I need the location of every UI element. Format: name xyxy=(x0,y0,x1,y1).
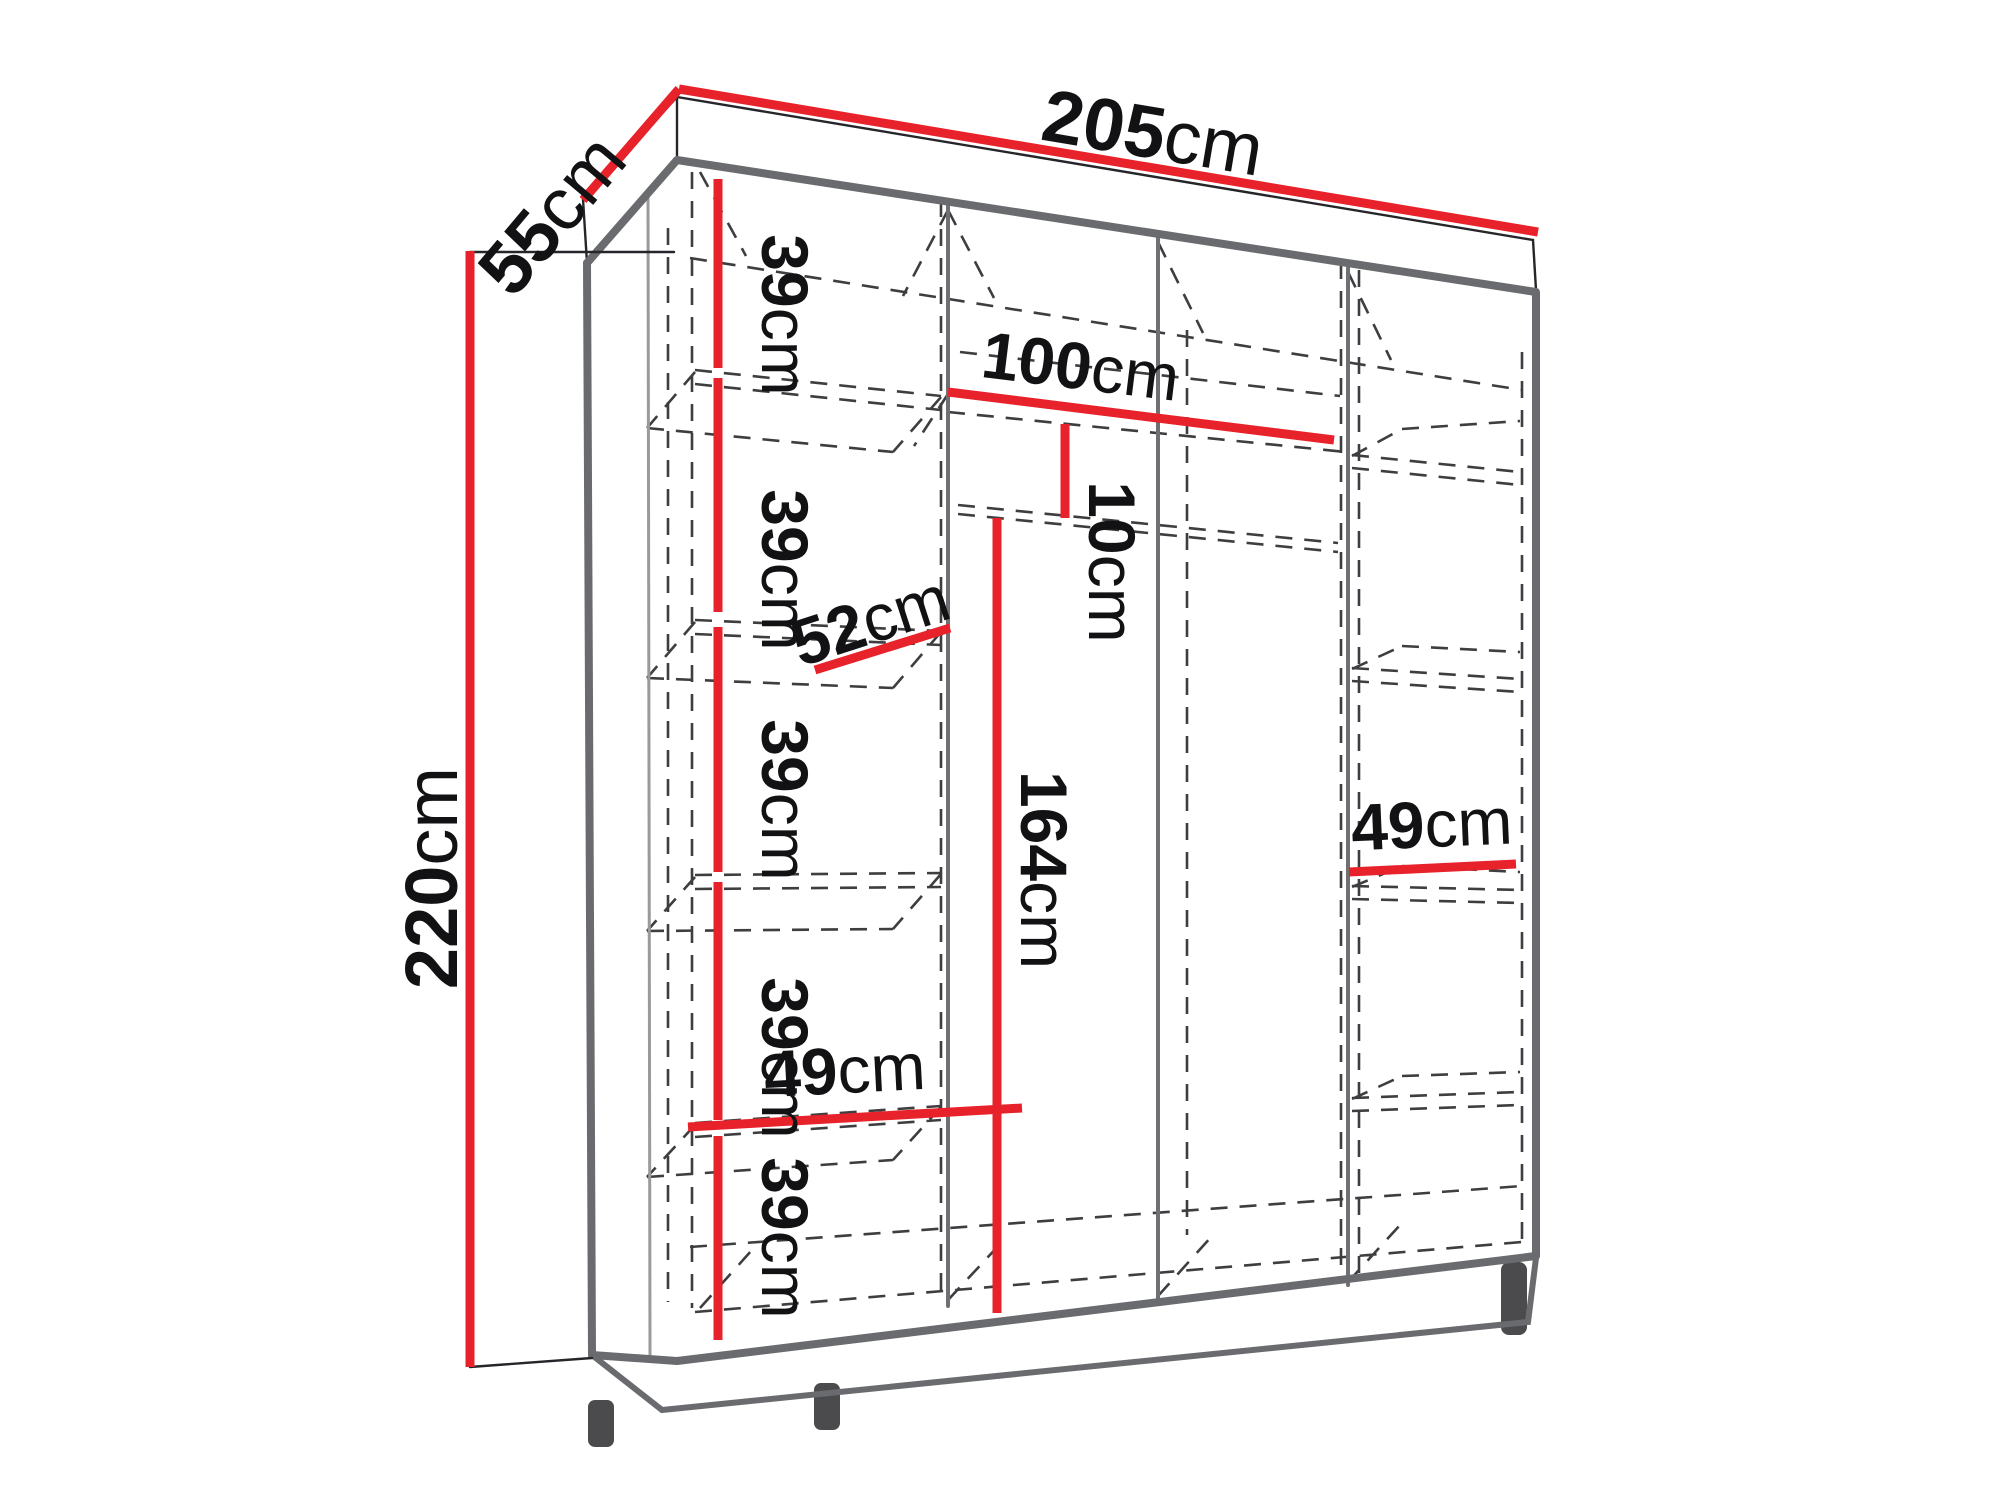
foot-left xyxy=(588,1400,614,1447)
label-height: 220cm xyxy=(390,767,473,989)
label-depth: 55cm xyxy=(461,118,641,310)
wardrobe-dimension-diagram: 205cm 55cm 220cm 39cm 39cm 39cm 39cm 39c… xyxy=(0,0,2000,1500)
carcass-top-right-edge xyxy=(587,160,1536,1256)
label-rod-height: 164cm xyxy=(1007,771,1081,969)
label-right-shelf-width: 49cm xyxy=(1350,784,1514,865)
wardrobe-outline xyxy=(583,97,1536,1410)
diagram-canvas: 205cm 55cm 220cm 39cm 39cm 39cm 39cm 39c… xyxy=(0,0,2000,1500)
label-rod-offset: 10cm xyxy=(1075,481,1149,642)
side-panel-front-edge xyxy=(587,263,592,1355)
label-shelf-spacing-5: 39cm xyxy=(748,1157,822,1318)
label-width: 205cm xyxy=(1037,73,1270,192)
dimension-lines xyxy=(470,89,1538,1367)
label-left-shelf-width: 49cm xyxy=(762,1029,927,1111)
left-wall-inner-edge xyxy=(648,194,650,1356)
label-shelf-spacing-1: 39cm xyxy=(748,234,822,395)
label-shelf-spacing-3: 39cm xyxy=(748,719,822,880)
height-extension-lines xyxy=(470,252,674,1367)
right-column-shelves xyxy=(1352,421,1520,1111)
plinth-edge xyxy=(592,1258,1536,1410)
